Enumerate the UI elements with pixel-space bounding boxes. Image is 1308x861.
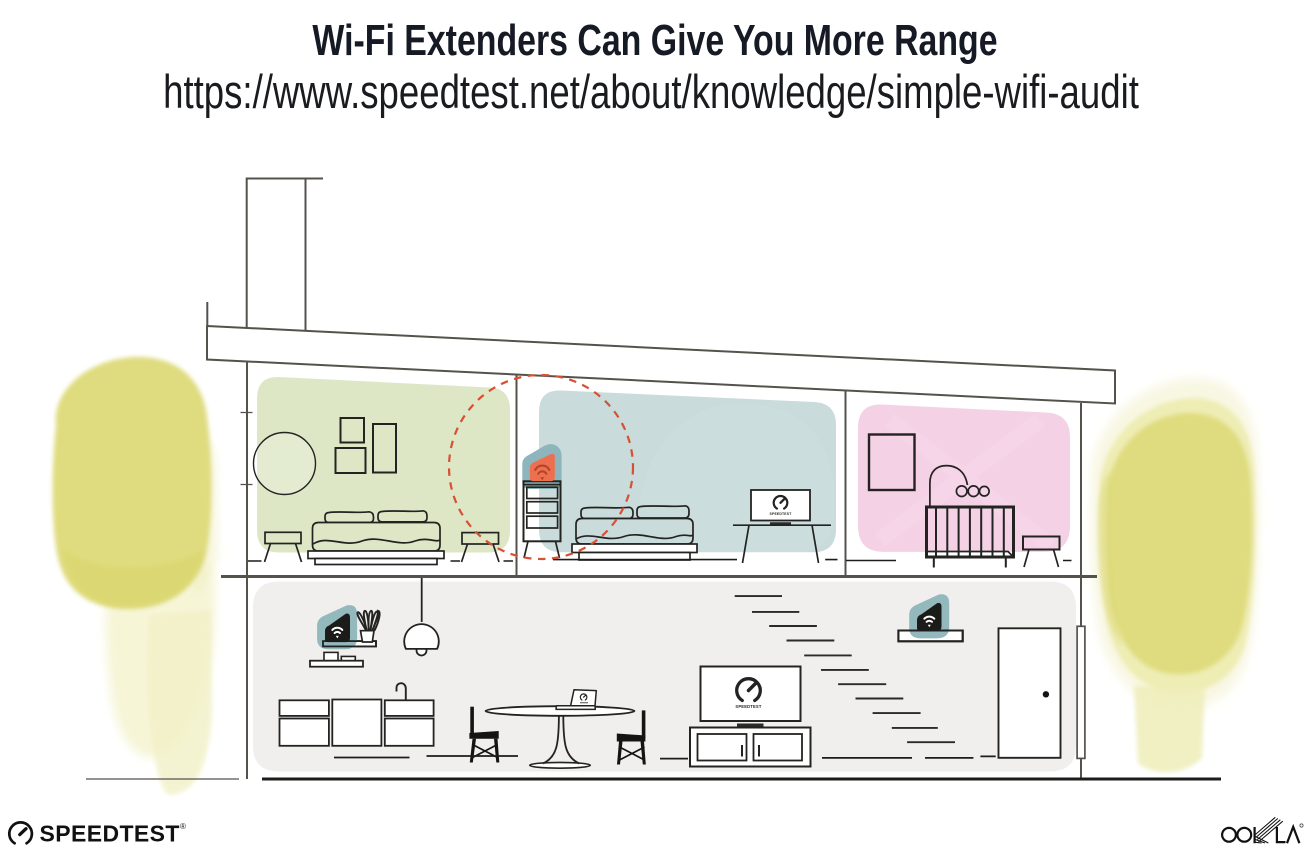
svg-text:SPEEDTEST: SPEEDTEST [770,512,793,516]
svg-text:SPEEDTEST: SPEEDTEST [40,821,180,847]
svg-text:®: ® [180,822,186,831]
svg-text:SPEEDTEST: SPEEDTEST [735,704,761,709]
